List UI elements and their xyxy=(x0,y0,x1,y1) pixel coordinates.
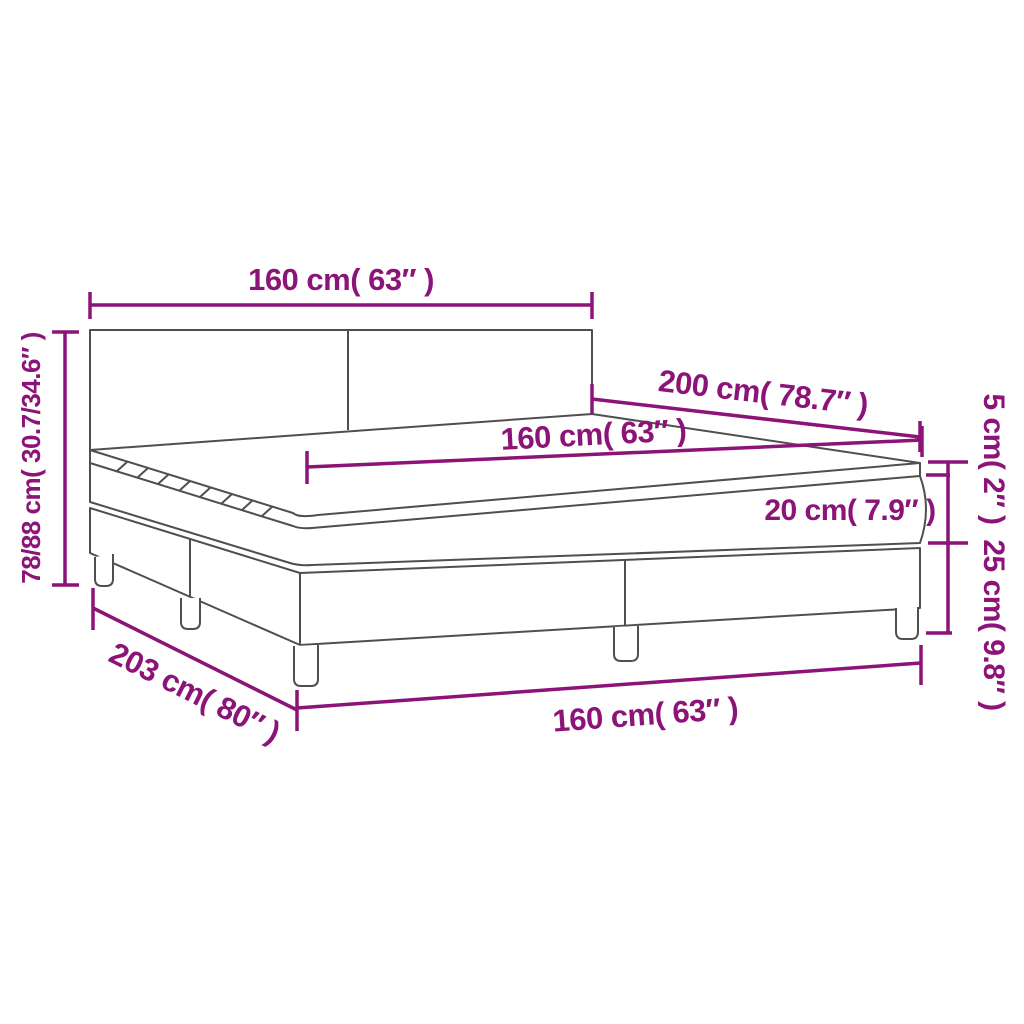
topper-height-label: 5 cm( 2″ ) xyxy=(977,393,1010,524)
total-height-label: 78/88 cm( 30.7/34.6″ ) xyxy=(16,332,46,584)
dim-base-width: 160 cm( 63″ ) xyxy=(297,645,921,739)
box-spring-base xyxy=(90,508,920,645)
mattress-height-label: 20 cm( 7.9″ ) xyxy=(764,494,935,527)
base-width-label: 160 cm( 63″ ) xyxy=(551,690,739,738)
bed-leg xyxy=(181,598,200,629)
mattress-length-label: 200 cm( 78.7″ ) xyxy=(657,363,870,422)
headboard-width-label: 160 cm( 63″ ) xyxy=(248,262,434,297)
dim-headboard-width: 160 cm( 63″ ) xyxy=(90,262,592,319)
bed-leg xyxy=(95,554,113,586)
bed-leg xyxy=(896,607,918,639)
dim-total-height: 78/88 cm( 30.7/34.6″ ) xyxy=(16,332,79,585)
bed-dimension-diagram: 160 cm( 63″ ) 78/88 cm( 30.7/34.6″ ) 200… xyxy=(0,0,1024,1024)
base-height-label: 25 cm( 9.8″ ) xyxy=(977,539,1010,710)
bed-leg xyxy=(294,645,318,686)
diagram-canvas: 160 cm( 63″ ) 78/88 cm( 30.7/34.6″ ) 200… xyxy=(0,0,1024,1024)
dim-right-stack: 5 cm( 2″ ) 25 cm( 9.8″ ) xyxy=(926,393,1010,710)
bed-leg xyxy=(614,626,638,661)
